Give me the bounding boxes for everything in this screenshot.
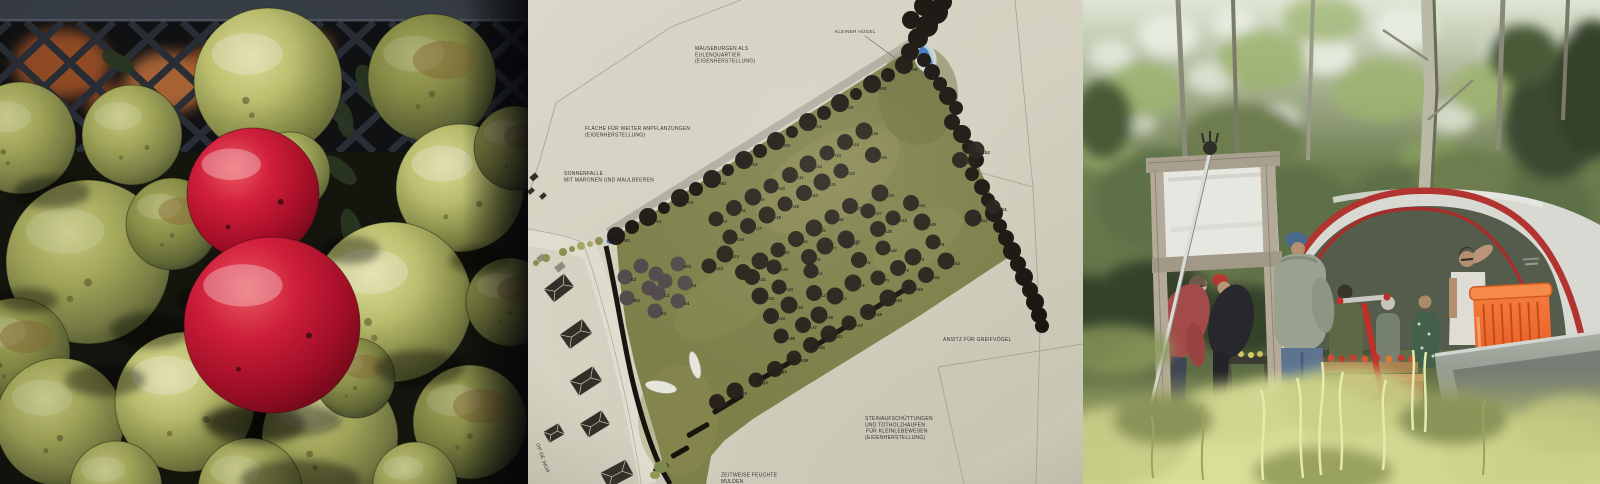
- pattern-dot: [1432, 355, 1435, 358]
- right-edge-shadow: [462, 0, 528, 484]
- person-head: [1291, 242, 1305, 256]
- yellow-apple: [1248, 352, 1254, 358]
- photo-apple-crate: [0, 0, 528, 484]
- photo-planting-plan: W1A1A2W2A3W3A4A5W4A6A7A8A9A10A11A12A13A1…: [528, 0, 1083, 484]
- photo-harvest-gathering: [1083, 0, 1600, 484]
- picker-basket: [1203, 141, 1217, 155]
- apple-crate-scene: [0, 0, 528, 484]
- pattern-dot: [1418, 323, 1421, 326]
- person-head: [1419, 296, 1432, 309]
- handle-knob: [1384, 294, 1391, 301]
- handle-knob: [1337, 298, 1344, 305]
- sunglasses: [1461, 259, 1473, 260]
- photo-collage: W1A1A2W2A3W3A4A5W4A6A7A8A9A10A11A12A13A1…: [0, 0, 1600, 484]
- planting-plan-map: W1A1A2W2A3W3A4A5W4A6A7A8A9A10A11A12A13A1…: [528, 0, 1083, 484]
- pattern-dot: [1428, 333, 1431, 336]
- yellow-apple: [1257, 351, 1263, 357]
- person-head: [1338, 285, 1353, 300]
- gathering-scene: [1083, 0, 1600, 484]
- plan-photo-vignette: [528, 0, 1083, 484]
- photo-vignette: [0, 0, 528, 484]
- pattern-dot: [1421, 347, 1424, 350]
- arm: [1449, 278, 1457, 318]
